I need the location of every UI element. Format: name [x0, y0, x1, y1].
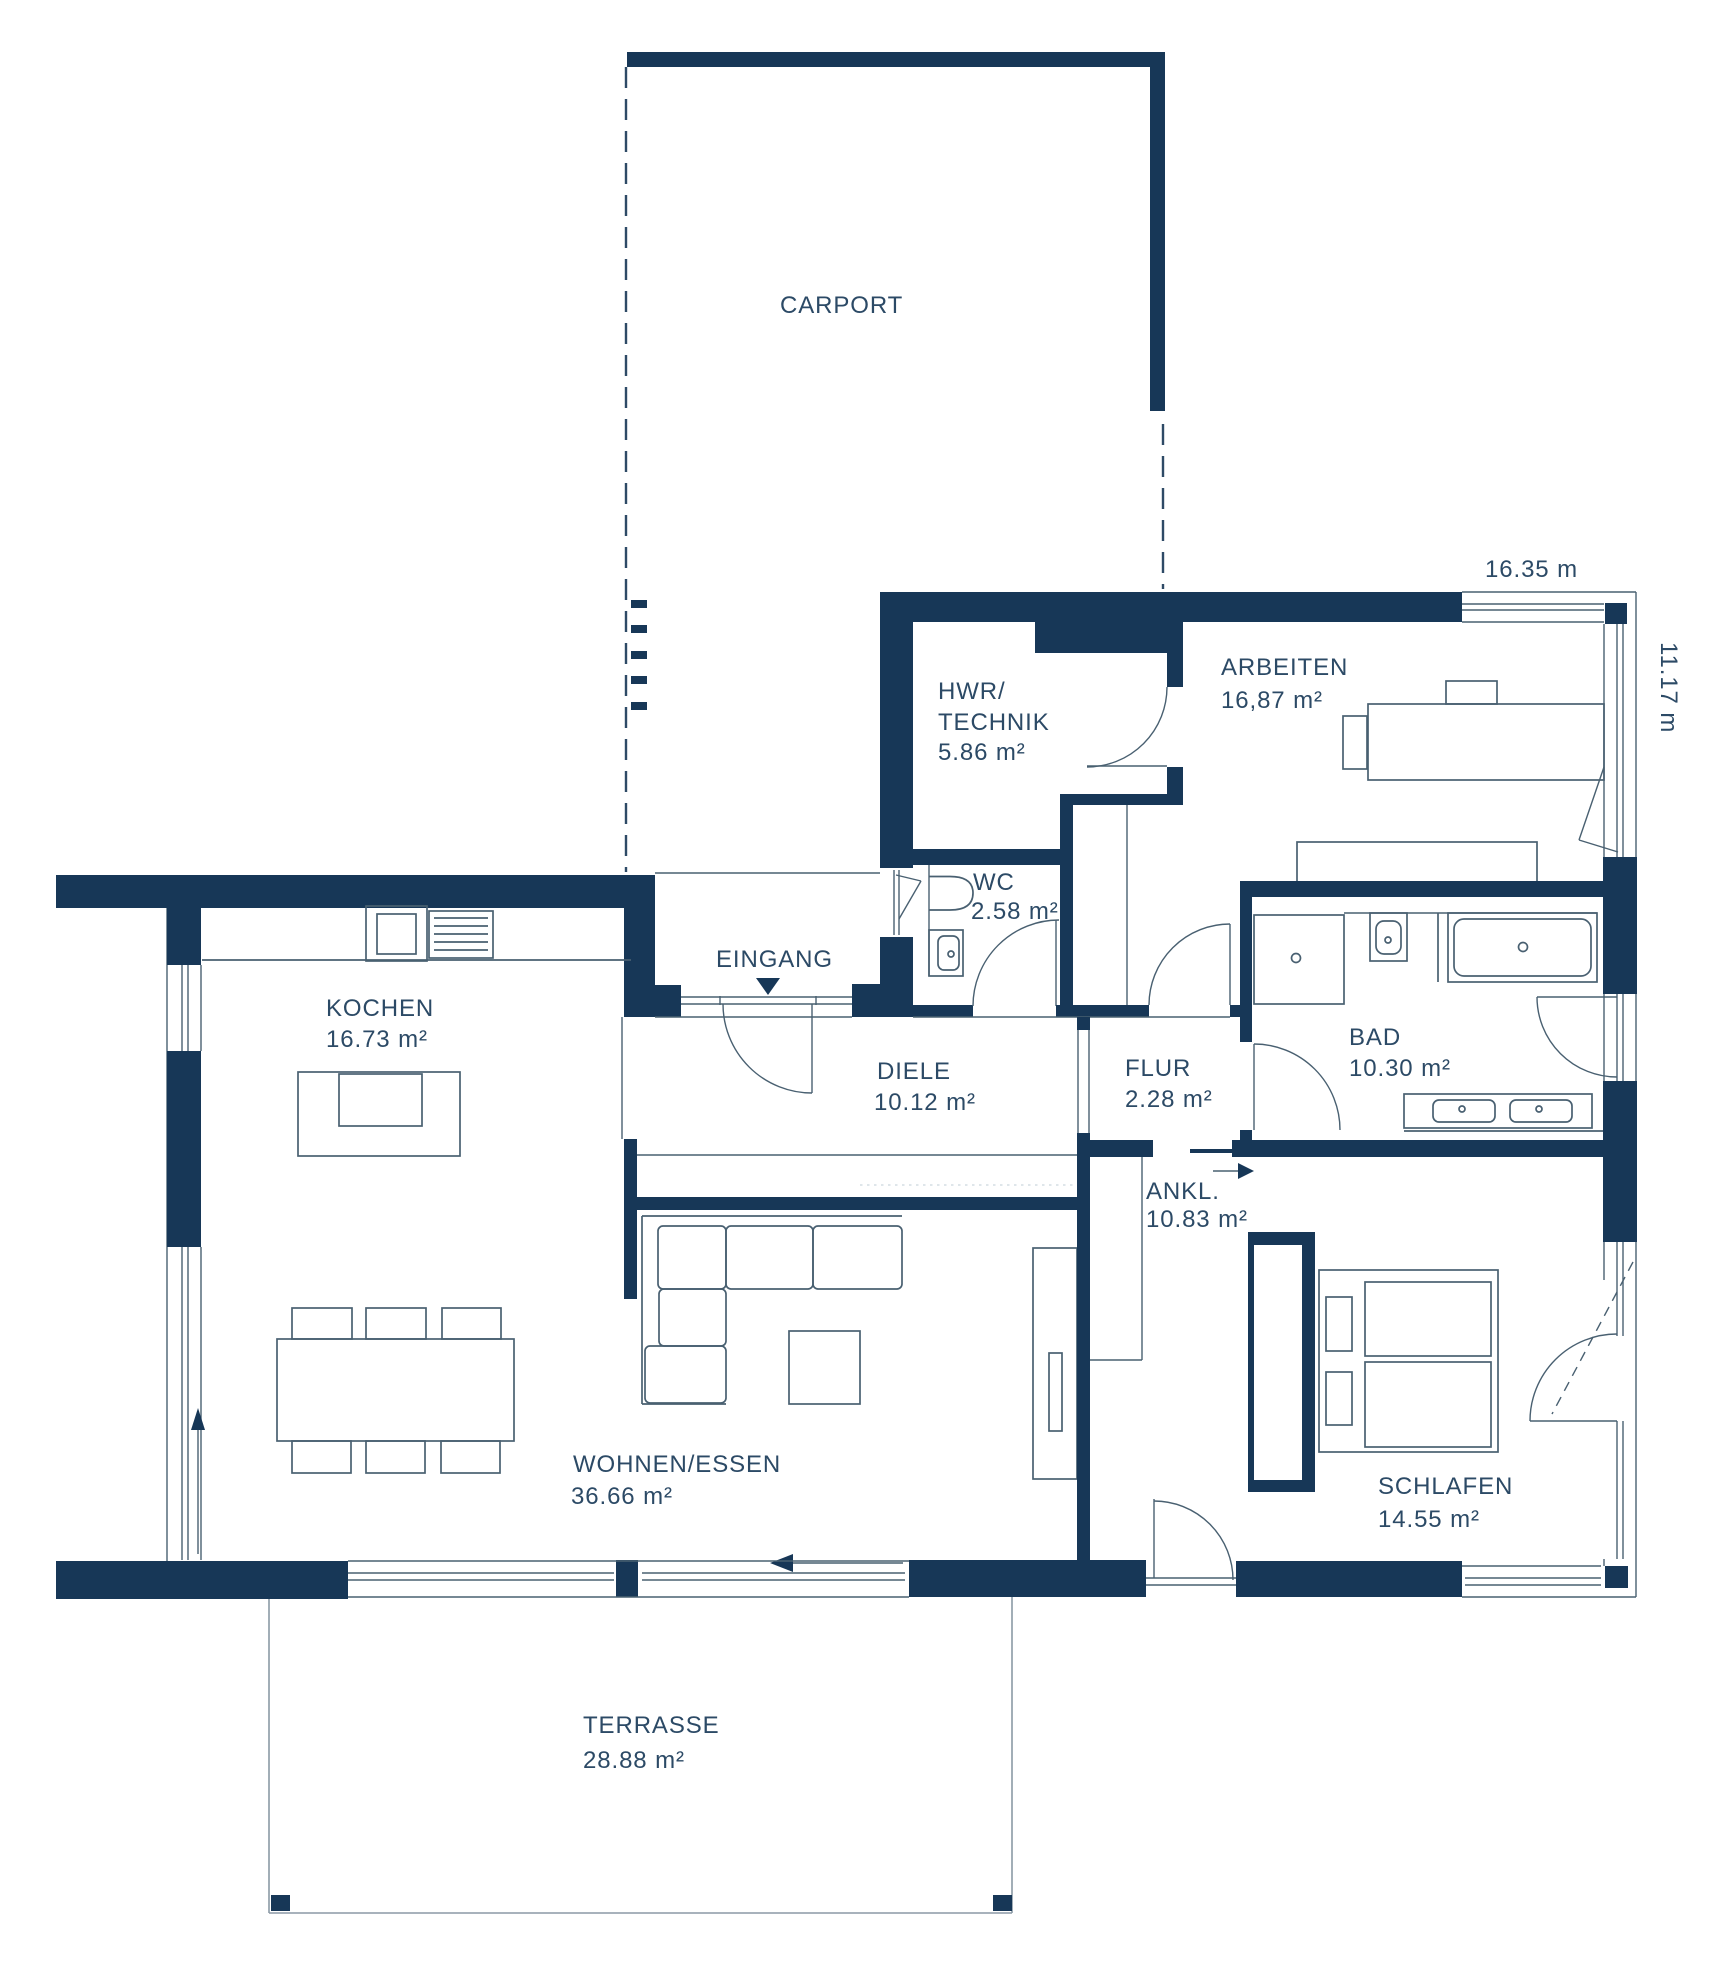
svg-text:ARBEITEN: ARBEITEN	[1221, 654, 1348, 681]
svg-text:HWR/: HWR/	[938, 678, 1006, 705]
svg-text:10.12 m²: 10.12 m²	[874, 1089, 976, 1116]
svg-text:BAD: BAD	[1349, 1024, 1401, 1051]
svg-text:CARPORT: CARPORT	[780, 292, 903, 319]
svg-text:TECHNIK: TECHNIK	[938, 709, 1050, 736]
svg-text:16.35 m: 16.35 m	[1485, 556, 1578, 583]
svg-text:16,87 m²: 16,87 m²	[1221, 687, 1323, 714]
svg-text:16.73 m²: 16.73 m²	[326, 1026, 428, 1053]
svg-text:5.86 m²: 5.86 m²	[938, 739, 1026, 766]
svg-text:14.55 m²: 14.55 m²	[1378, 1506, 1480, 1533]
svg-text:2.58 m²: 2.58 m²	[971, 898, 1059, 925]
svg-text:KOCHEN: KOCHEN	[326, 995, 434, 1022]
svg-text:11.17 m: 11.17 m	[1655, 642, 1682, 733]
svg-text:SCHLAFEN: SCHLAFEN	[1378, 1473, 1513, 1500]
svg-text:FLUR: FLUR	[1125, 1055, 1191, 1082]
svg-text:2.28 m²: 2.28 m²	[1125, 1086, 1213, 1113]
svg-text:WOHNEN/ESSEN: WOHNEN/ESSEN	[573, 1451, 781, 1478]
svg-text:EINGANG: EINGANG	[716, 946, 833, 973]
svg-text:36.66 m²: 36.66 m²	[571, 1483, 673, 1510]
svg-text:WC: WC	[973, 869, 1015, 896]
svg-text:10.30 m²: 10.30 m²	[1349, 1055, 1451, 1082]
svg-text:10.83 m²: 10.83 m²	[1146, 1206, 1248, 1233]
svg-text:DIELE: DIELE	[877, 1058, 951, 1085]
svg-text:TERRASSE: TERRASSE	[583, 1712, 720, 1739]
svg-text:ANKL.: ANKL.	[1146, 1178, 1220, 1205]
svg-text:28.88 m²: 28.88 m²	[583, 1747, 685, 1774]
